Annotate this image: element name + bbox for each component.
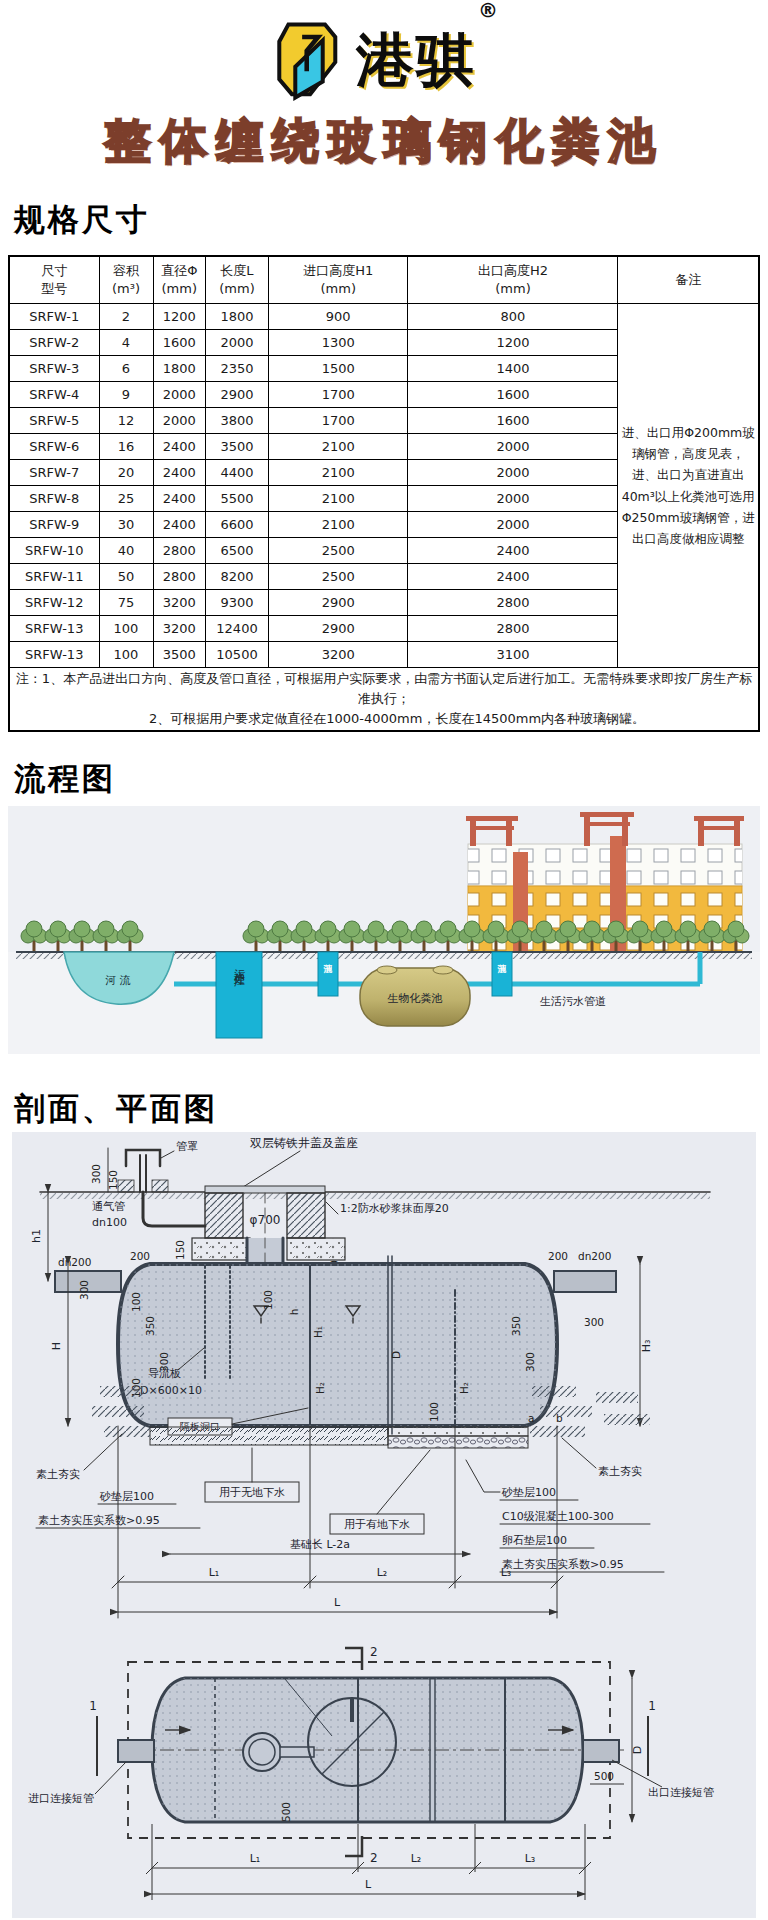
plan-inlet-stub bbox=[118, 1740, 154, 1762]
spec-cell-diameter: 1200 bbox=[153, 304, 206, 330]
dim-100-a: 100 bbox=[130, 1292, 142, 1312]
flow-heading: 流程图 bbox=[14, 758, 768, 800]
spec-cell-model: SRFW-1 bbox=[9, 304, 99, 330]
spec-cell-diameter: 2800 bbox=[153, 538, 206, 564]
sand-left-label: 砂垫层100 bbox=[99, 1490, 154, 1503]
deflector-label: 导流板 bbox=[148, 1367, 181, 1380]
spec-cell-diameter: 3200 bbox=[153, 616, 206, 642]
spec-cell-h2: 2000 bbox=[408, 486, 618, 512]
spec-cell-length: 6600 bbox=[206, 512, 269, 538]
spec-cell-length: 8200 bbox=[206, 564, 269, 590]
spec-cell-h1: 1300 bbox=[268, 330, 408, 356]
spec-cell-h1: 1700 bbox=[268, 408, 408, 434]
spec-cell-h1: 2100 bbox=[268, 434, 408, 460]
spec-cell-diameter: 2400 bbox=[153, 460, 206, 486]
plan-dim-L2: L₂ bbox=[411, 1852, 422, 1865]
groundwater-label: 用于有地下水 bbox=[344, 1518, 410, 1531]
spec-cell-length: 2000 bbox=[206, 330, 269, 356]
spec-cell-diameter: 2400 bbox=[153, 486, 206, 512]
spec-table-row: SRFW-1212001800900800进、出口用Φ200mm玻璃钢管，高度见… bbox=[9, 304, 759, 330]
spec-cell-volume: 25 bbox=[99, 486, 153, 512]
spec-cell-h2: 1200 bbox=[408, 330, 618, 356]
plan-marker-1-right: 1 bbox=[648, 1699, 656, 1713]
vent-pipe-label: 通气管 bbox=[92, 1200, 125, 1213]
treatment-plant: 污水处理厂 bbox=[216, 952, 262, 1038]
spec-cell-h2: 1400 bbox=[408, 356, 618, 382]
spec-cell-h1: 2100 bbox=[268, 512, 408, 538]
dim-D: D bbox=[390, 1351, 402, 1359]
spec-cell-model: SRFW-2 bbox=[9, 330, 99, 356]
spec-table-notes: 注：1、本产品进出口方向、高度及管口直径，可根据用户实际要求，由需方书面认定后进… bbox=[9, 668, 759, 732]
spec-remark-cell: 进、出口用Φ200mm玻璃钢管，高度见表，进、出口为直进直出40m³以上化粪池可… bbox=[618, 304, 759, 668]
dim-300-left: 300 bbox=[78, 1280, 90, 1300]
spec-cell-h2: 2400 bbox=[408, 538, 618, 564]
dim-300-right: 300 bbox=[584, 1316, 604, 1328]
spec-cell-h2: 2400 bbox=[408, 564, 618, 590]
spec-cell-volume: 100 bbox=[99, 616, 153, 642]
technical-drawing: 管罩 300 150 双层铸铁井盖及盖座 φ700 1:2防水砂浆抹面厚20 通… bbox=[0, 1130, 768, 1920]
spec-cell-volume: 2 bbox=[99, 304, 153, 330]
spec-cell-h2: 1600 bbox=[408, 382, 618, 408]
spec-cell-length: 2350 bbox=[206, 356, 269, 382]
spec-cell-volume: 40 bbox=[99, 538, 153, 564]
dim-H: H bbox=[50, 1342, 63, 1350]
note-line-2: 2、可根据用户要求定做直径在1000-4000mm，长度在14500mm内各种玻… bbox=[12, 709, 756, 729]
spec-cell-model: SRFW-5 bbox=[9, 408, 99, 434]
note-line-1: 注：1、本产品进出口方向、高度及管口直径，可根据用户实际要求，由需方书面认定后进… bbox=[12, 669, 756, 709]
spec-cell-volume: 6 bbox=[99, 356, 153, 382]
registered-mark: ® bbox=[478, 0, 498, 22]
spec-cell-model: SRFW-7 bbox=[9, 460, 99, 486]
brand-text: 港骐 bbox=[356, 26, 476, 94]
spec-cell-h1: 2100 bbox=[268, 486, 408, 512]
spec-cell-length: 12400 bbox=[206, 616, 269, 642]
spec-cell-length: 10500 bbox=[206, 642, 269, 668]
spec-cell-length: 4400 bbox=[206, 460, 269, 486]
deflector-size-label: D×600×10 bbox=[140, 1384, 202, 1397]
spec-cell-h1: 3200 bbox=[268, 642, 408, 668]
spec-cell-model: SRFW-4 bbox=[9, 382, 99, 408]
dn200-left-label: dn200 bbox=[58, 1256, 91, 1268]
spec-cell-length: 3800 bbox=[206, 408, 269, 434]
table-notes-cell: 注：1、本产品进出口方向、高度及管口直径，可根据用户实际要求，由需方书面认定后进… bbox=[9, 668, 759, 732]
plan-dim-D: D bbox=[631, 1746, 644, 1754]
spec-cell-length: 5500 bbox=[206, 486, 269, 512]
spec-cell-h2: 2000 bbox=[408, 512, 618, 538]
col-outlet-height: 出口高度H2(mm) bbox=[408, 256, 618, 304]
dim-300-cap: 300 bbox=[90, 1164, 102, 1184]
plan-inlet-label: 进口连接短管 bbox=[28, 1792, 94, 1805]
spec-cell-diameter: 1600 bbox=[153, 330, 206, 356]
col-inlet-height: 进口高度H1(mm) bbox=[268, 256, 408, 304]
spec-cell-model: SRFW-13 bbox=[9, 616, 99, 642]
spec-cell-h1: 1500 bbox=[268, 356, 408, 382]
bio-septic-tank: 生物化粪池 bbox=[360, 966, 470, 1026]
col-remark: 备注 bbox=[618, 256, 759, 304]
spec-cell-diameter: 2400 bbox=[153, 434, 206, 460]
spec-cell-h1: 1700 bbox=[268, 382, 408, 408]
dim-H1: H₁ bbox=[312, 1326, 324, 1338]
col-diameter: 直径Φ(mm) bbox=[153, 256, 206, 304]
plan-outlet-label: 出口连接短管 bbox=[648, 1786, 714, 1799]
dim-150-cap: 150 bbox=[107, 1170, 119, 1190]
plan-marker-2-bottom: 2 bbox=[370, 1851, 378, 1865]
plan-outlet-stub bbox=[583, 1740, 619, 1762]
spec-cell-h1: 2500 bbox=[268, 564, 408, 590]
dim-h1: h1 bbox=[30, 1229, 43, 1243]
spec-cell-model: SRFW-8 bbox=[9, 486, 99, 512]
outlet-pipe bbox=[554, 1271, 616, 1292]
col-length: 长度L(mm) bbox=[206, 256, 269, 304]
spec-cell-model: SRFW-11 bbox=[9, 564, 99, 590]
spec-cell-diameter: 3500 bbox=[153, 642, 206, 668]
spec-cell-h1: 900 bbox=[268, 304, 408, 330]
spec-cell-volume: 30 bbox=[99, 512, 153, 538]
spec-cell-h2: 2800 bbox=[408, 616, 618, 642]
page-title: 整体缠绕玻璃钢化粪池 bbox=[0, 110, 768, 173]
brand-logo-icon bbox=[272, 21, 346, 101]
plan-dim-L3: L₃ bbox=[525, 1852, 536, 1865]
col-model: 尺寸型号 bbox=[9, 256, 99, 304]
spec-table-body: SRFW-1212001800900800进、出口用Φ200mm玻璃钢管，高度见… bbox=[9, 304, 759, 668]
spec-cell-h2: 3100 bbox=[408, 642, 618, 668]
spec-cell-diameter: 2800 bbox=[153, 564, 206, 590]
spec-cell-model: SRFW-13 bbox=[9, 642, 99, 668]
soil-left-label: 素土夯实 bbox=[36, 1468, 80, 1481]
plan-marker-1-left: 1 bbox=[89, 1699, 97, 1713]
spec-cell-volume: 75 bbox=[99, 590, 153, 616]
spec-cell-length: 3500 bbox=[206, 434, 269, 460]
spec-cell-model: SRFW-10 bbox=[9, 538, 99, 564]
sewage-pipe-label: 生活污水管道 bbox=[540, 995, 606, 1008]
spec-cell-diameter: 1800 bbox=[153, 356, 206, 382]
spec-cell-h1: 2900 bbox=[268, 590, 408, 616]
spec-cell-length: 9300 bbox=[206, 590, 269, 616]
col-volume: 容积(m³) bbox=[99, 256, 153, 304]
layer-sand: 砂垫层100 bbox=[501, 1486, 556, 1499]
spec-cell-volume: 100 bbox=[99, 642, 153, 668]
header: 港骐® bbox=[0, 0, 768, 106]
specs-heading: 规格尺寸 bbox=[14, 199, 768, 241]
plan-dim-L1: L₁ bbox=[250, 1852, 261, 1865]
plan-dim-L: L bbox=[365, 1878, 372, 1891]
vent-dn100-label: dn100 bbox=[92, 1216, 127, 1229]
dim-a: a bbox=[528, 1412, 534, 1424]
spec-cell-model: SRFW-9 bbox=[9, 512, 99, 538]
spec-cell-length: 6500 bbox=[206, 538, 269, 564]
spec-cell-volume: 9 bbox=[99, 382, 153, 408]
spec-cell-h2: 2000 bbox=[408, 434, 618, 460]
spec-cell-model: SRFW-3 bbox=[9, 356, 99, 382]
spec-cell-h2: 800 bbox=[408, 304, 618, 330]
spec-cell-h1: 2500 bbox=[268, 538, 408, 564]
spec-cell-h1: 2100 bbox=[268, 460, 408, 486]
bio-septic-tank-label: 生物化粪池 bbox=[388, 992, 443, 1005]
dim-L2-sec: L₂ bbox=[377, 1566, 388, 1579]
coeff-left-label: 素土夯实压实系数>0.95 bbox=[38, 1514, 160, 1527]
spec-cell-diameter: 2000 bbox=[153, 382, 206, 408]
mortar-label: 1:2防水砂浆抹面厚20 bbox=[340, 1202, 449, 1215]
spec-cell-h2: 2800 bbox=[408, 590, 618, 616]
flow-diagram: 河 流 污水处理厂 调节池 生物化粪池 调节池 生活污水管道 bbox=[0, 800, 768, 1062]
dim-100-d: 100 bbox=[428, 1402, 440, 1422]
layer-coeff: 素土夯实压实系数>0.95 bbox=[502, 1558, 624, 1571]
spec-cell-volume: 16 bbox=[99, 434, 153, 460]
dim-L1-sec: L₁ bbox=[209, 1566, 220, 1579]
dim-200-left: 200 bbox=[130, 1250, 150, 1262]
dim-H3: H₃ bbox=[640, 1340, 653, 1353]
spec-cell-length: 2900 bbox=[206, 382, 269, 408]
spec-cell-model: SRFW-12 bbox=[9, 590, 99, 616]
foundation-dim-label: 基础长 L-2a bbox=[290, 1538, 350, 1551]
dim-L3-sec: L₃ bbox=[501, 1566, 512, 1579]
dim-H2-right: H₂ bbox=[458, 1382, 470, 1394]
spec-table-header: 尺寸型号 容积(m³) 直径Φ(mm) 长度L(mm) 进口高度H1(mm) 出… bbox=[9, 256, 759, 304]
no-groundwater-label: 用于无地下水 bbox=[219, 1486, 285, 1499]
regulating-pool-1: 调节池 bbox=[318, 952, 338, 996]
spec-cell-volume: 20 bbox=[99, 460, 153, 486]
dim-350-b: 350 bbox=[510, 1316, 522, 1336]
river-label: 河 流 bbox=[105, 974, 131, 987]
plan-marker-2-top: 2 bbox=[370, 1645, 378, 1659]
regulating-pool-2: 调节池 bbox=[492, 952, 512, 996]
spec-cell-volume: 50 bbox=[99, 564, 153, 590]
manhole-cover-label: 双层铸铁井盖及盖座 bbox=[250, 1136, 358, 1150]
spec-cell-h1: 2900 bbox=[268, 616, 408, 642]
spec-cell-volume: 12 bbox=[99, 408, 153, 434]
spec-cell-diameter: 2000 bbox=[153, 408, 206, 434]
dim-300-b: 300 bbox=[524, 1352, 536, 1372]
plan-dim-500-right: 500 bbox=[594, 1770, 614, 1782]
soil-right-label: 素土夯实 bbox=[598, 1465, 642, 1478]
dim-150-pad: 150 bbox=[174, 1240, 186, 1260]
dim-350-a: 350 bbox=[144, 1316, 156, 1336]
spec-cell-diameter: 3200 bbox=[153, 590, 206, 616]
dim-h: h bbox=[288, 1309, 300, 1316]
pipe-cap-label: 管罩 bbox=[176, 1140, 198, 1153]
drawing-heading: 剖面、平面图 bbox=[14, 1088, 768, 1130]
plan-dim-500-bottom: 500 bbox=[280, 1802, 292, 1822]
spec-cell-length: 1800 bbox=[206, 304, 269, 330]
dim-H2-left: H₂ bbox=[314, 1382, 326, 1394]
spec-table: 尺寸型号 容积(m³) 直径Φ(mm) 长度L(mm) 进口高度H1(mm) 出… bbox=[8, 255, 760, 732]
brand-name: 港骐® bbox=[356, 22, 496, 100]
dim-100-c: 100 bbox=[262, 1290, 274, 1310]
spec-cell-diameter: 2400 bbox=[153, 512, 206, 538]
spec-cell-model: SRFW-6 bbox=[9, 434, 99, 460]
dim-200-right: 200 bbox=[548, 1250, 568, 1262]
layer-concrete: C10级混凝土100-300 bbox=[502, 1510, 614, 1523]
spec-cell-volume: 4 bbox=[99, 330, 153, 356]
dim-L-sec: L bbox=[334, 1596, 341, 1609]
dn200-right-label: dn200 bbox=[578, 1250, 611, 1262]
page: 港骐® 整体缠绕玻璃钢化粪池 规格尺寸 尺寸型号 容积(m³) 直径Φ(mm) … bbox=[0, 0, 768, 1920]
spec-cell-h2: 1600 bbox=[408, 408, 618, 434]
spec-cell-h2: 2000 bbox=[408, 460, 618, 486]
